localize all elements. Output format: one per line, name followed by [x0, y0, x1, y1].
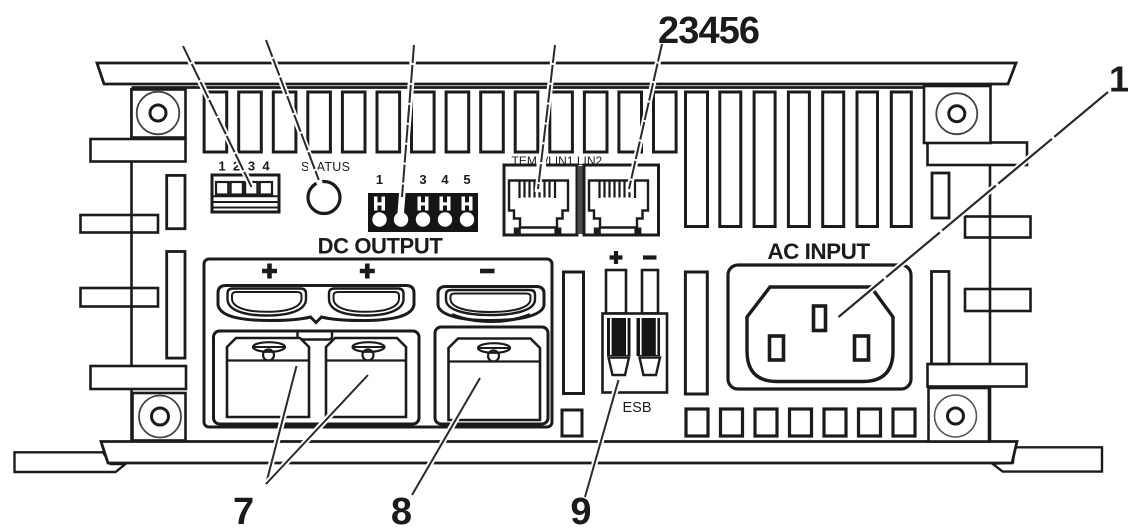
svg-text:ESB: ESB [623, 400, 652, 416]
svg-text:4: 4 [262, 159, 270, 174]
svg-text:1: 1 [376, 172, 383, 187]
svg-text:23456: 23456 [658, 10, 759, 52]
svg-text:AC INPUT: AC INPUT [767, 239, 870, 264]
svg-text:5: 5 [463, 172, 470, 187]
svg-text:4: 4 [441, 172, 449, 187]
svg-text:1: 1 [218, 159, 225, 174]
svg-text:DC OUTPUT: DC OUTPUT [318, 234, 444, 259]
svg-text:9: 9 [570, 491, 591, 532]
svg-text:8: 8 [391, 491, 412, 532]
svg-text:3: 3 [248, 159, 255, 174]
svg-text:1: 1 [1109, 59, 1129, 100]
svg-text:3: 3 [419, 172, 426, 187]
svg-text:7: 7 [233, 491, 254, 532]
